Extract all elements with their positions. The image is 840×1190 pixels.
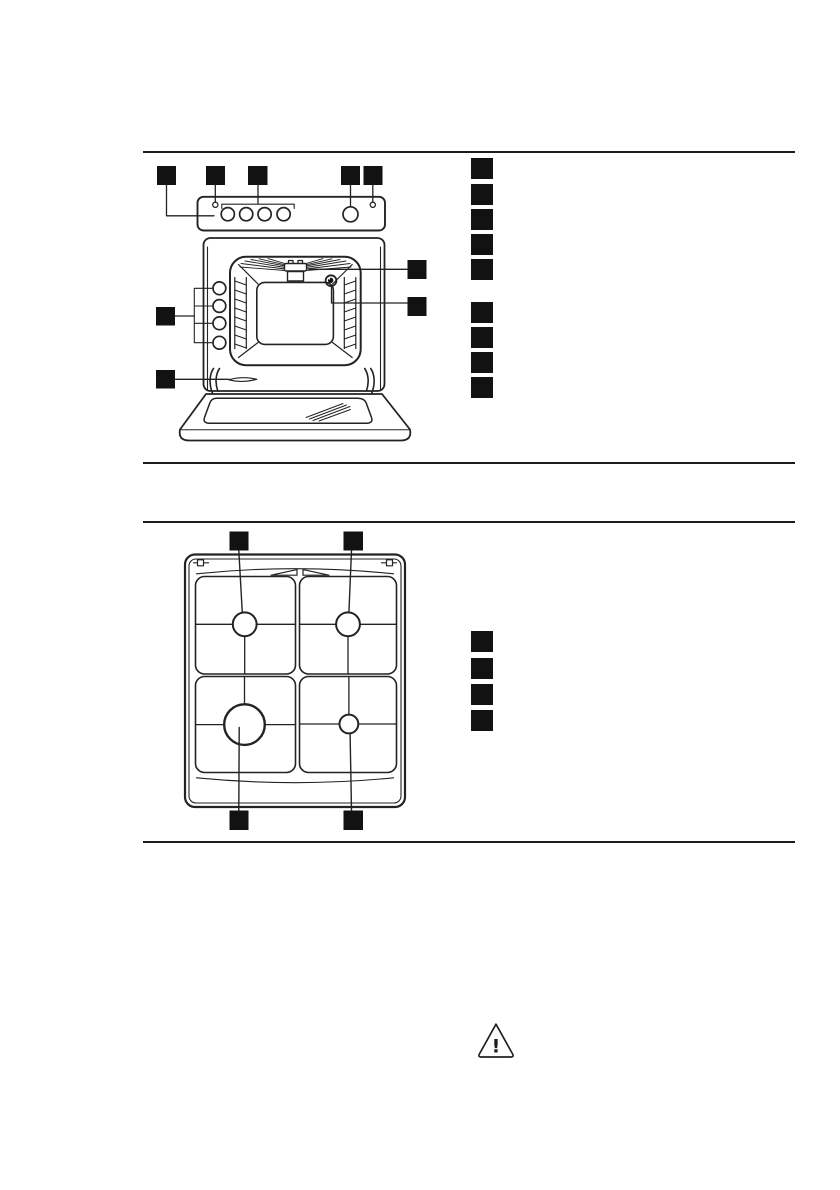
- hob-knob-1: [221, 208, 234, 221]
- igniter-box-left: [198, 560, 204, 566]
- oven-legend-marker-5: [471, 259, 493, 280]
- hob-legend-marker-4: [471, 710, 493, 731]
- cross-lines-top-right: [300, 624, 397, 674]
- oven-legend-marker-6: [471, 302, 493, 323]
- leader-line-burner-tr: [349, 551, 352, 613]
- oven-legend-marker-7: [471, 327, 493, 348]
- hob-legend-marker-1: [471, 631, 493, 652]
- oven-callout-5-marker: [364, 166, 383, 185]
- oven-knob: [343, 207, 358, 222]
- oven-callout-vent-marker: [156, 370, 175, 389]
- oven-callout-grill-marker: [408, 260, 427, 279]
- hob-notch-right: [303, 570, 329, 576]
- grill-bracket-box: [288, 272, 304, 282]
- cross-lines-top-left: [196, 624, 296, 674]
- hob-callout-right-burner-marker: [344, 532, 364, 551]
- oven-callout-4-marker: [341, 166, 360, 185]
- hob-callout-left-burner-marker: [230, 532, 249, 551]
- shelf-level-4: [213, 336, 226, 349]
- oven-callout-shelves-marker: [156, 307, 175, 326]
- igniter-box-right: [387, 560, 393, 566]
- hob-callout-small-burner-marker: [344, 811, 364, 831]
- pan-support-top-left: [196, 577, 296, 675]
- shelf-rack-right-hatching: [344, 281, 356, 348]
- hob-knob-3: [258, 208, 271, 221]
- hob-top-diagram: [150, 525, 430, 835]
- open-door: [180, 394, 411, 441]
- shelf-level-3: [213, 317, 226, 330]
- cross-lines-bottom-left: [196, 677, 296, 725]
- oven-callout-1-marker: [157, 166, 176, 185]
- cross-lines-bottom-right: [300, 677, 397, 725]
- oven-front-diagram: [140, 155, 470, 460]
- hob-legend-marker-3: [471, 684, 493, 705]
- oven-lamp-highlight: [328, 278, 330, 280]
- hob-legend-marker-2: [471, 658, 493, 679]
- burner-semi-rapid-right: [336, 612, 360, 636]
- leader-line-1: [167, 185, 215, 216]
- grill-element-fan-left: [240, 259, 285, 271]
- hob-notch-left: [271, 570, 297, 576]
- grill-bracket-plate: [285, 264, 307, 272]
- leader-line-lamp: [332, 287, 408, 303]
- warning-exclamation: !: [492, 1036, 501, 1058]
- hob-knob-2: [240, 208, 253, 221]
- burner-rapid-large: [224, 704, 265, 745]
- shelf-level-2: [213, 300, 226, 313]
- manual-page: !: [0, 0, 840, 1190]
- door-glass-shine: [306, 404, 351, 422]
- hob-front-arc: [197, 778, 394, 783]
- shelf-rack-left-hatching: [235, 281, 247, 348]
- cavity-back-window: [257, 282, 334, 344]
- shelf-level-1: [213, 282, 226, 295]
- hob-callout-large-burner-marker: [230, 811, 249, 831]
- oven-legend-marker-1: [471, 158, 493, 179]
- door-hinge-left: [210, 369, 219, 394]
- oven-callout-lamp-marker: [408, 297, 427, 316]
- control-panel: [198, 197, 386, 231]
- oven-legend-marker-4: [471, 234, 493, 255]
- door-hinge-right: [365, 369, 374, 394]
- divider-hob-bottom: [143, 841, 795, 843]
- oven-legend-marker-8: [471, 352, 493, 373]
- oven-legend-marker-2: [471, 184, 493, 205]
- indicator-light-left: [213, 202, 218, 207]
- oven-legend-marker-3: [471, 209, 493, 230]
- hob-knob-4: [277, 208, 290, 221]
- warning-triangle-icon: !: [477, 1021, 515, 1059]
- leader-line-burner-tl: [239, 551, 243, 613]
- indicator-light-right: [370, 202, 375, 207]
- divider-hob-top: [143, 521, 795, 523]
- divider-oven-bottom: [143, 462, 795, 464]
- oven-legend-marker-9: [471, 377, 493, 398]
- divider-top: [143, 151, 795, 153]
- door-vent-slot: [229, 378, 257, 382]
- burner-auxiliary-small: [340, 715, 359, 734]
- oven-callout-3-marker: [248, 166, 268, 185]
- burner-semi-rapid-left: [233, 612, 257, 636]
- oven-callout-2-marker: [206, 166, 225, 185]
